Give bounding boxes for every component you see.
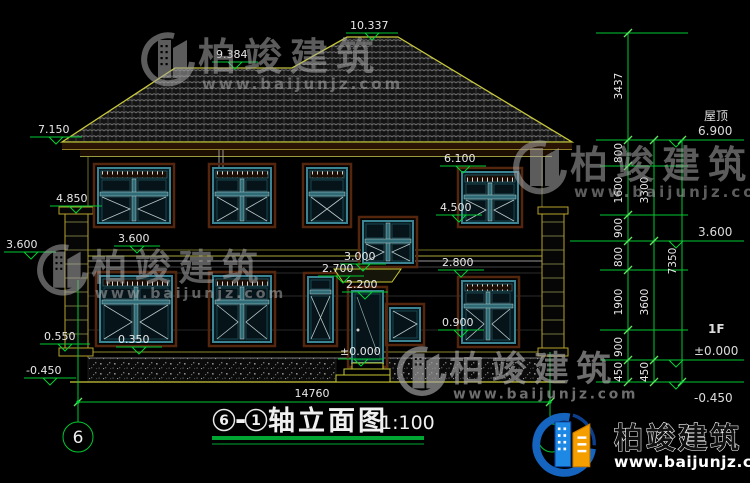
brand-url: www.baijunjz.com: [614, 453, 750, 471]
level-zero-right: ±0.000: [694, 344, 738, 358]
watermark-brand: 柏竣建筑: [91, 246, 266, 289]
drawing-canvas: 7.150 4.850 3.600 0.550 -0.450 0.350 3.6…: [0, 0, 750, 483]
level-3600-left-out: 3.600: [6, 238, 38, 251]
watermark-url: www.baijunjz.com: [453, 386, 638, 402]
floor-1f-label: 1F: [708, 322, 725, 336]
level-2200: 2.200: [346, 278, 378, 291]
axis-bubble-number: 6: [73, 428, 84, 448]
window-2f-3: [303, 164, 351, 227]
level-10337: 10.337: [350, 19, 389, 32]
door-handle: [357, 329, 360, 332]
window-2f-2: [209, 164, 275, 227]
level-4500: 4.500: [440, 201, 472, 214]
title-separator: -: [235, 405, 249, 436]
watermark-logo-icon: [144, 35, 192, 83]
level-4850: 4.850: [56, 192, 88, 205]
watermark-brand: 柏竣建筑: [449, 349, 618, 390]
right-dimensions: 3437 800 1600 900 800 1900 900 450 3300 …: [570, 29, 744, 405]
level-0550: 0.550: [44, 330, 76, 343]
level-0350: 0.350: [118, 333, 150, 346]
watermark-brand: 柏竣建筑: [570, 143, 750, 187]
watermark-url: www.baijunjz.com: [202, 75, 403, 93]
cad-elevation-drawing: 7.150 4.850 3.600 0.550 -0.450 0.350 3.6…: [0, 0, 750, 483]
dim-800b: 800: [613, 247, 625, 267]
level-2700: 2.700: [322, 262, 354, 275]
title-underline-thick: [212, 436, 424, 440]
dim-1900: 1900: [613, 289, 625, 316]
dim-3437: 3437: [613, 73, 625, 100]
brand-logo: 柏竣建筑 www.baijunjz.com: [536, 415, 750, 473]
entry-steps: [336, 363, 390, 382]
title-scale: 1:100: [380, 412, 435, 434]
watermark-bottom: 柏竣建筑 www.baijunjz.com: [400, 349, 638, 402]
cornice-bands: [62, 142, 572, 157]
level-7150: 7.150: [38, 123, 70, 136]
brand-name: 柏竣建筑: [614, 421, 742, 455]
dim-3600: 3600: [639, 289, 651, 316]
window-1f-3: [458, 277, 519, 347]
level-6100: 6.100: [444, 152, 476, 165]
level-neg0450-right: -0.450: [694, 391, 733, 405]
drawing-title: 6 - 1 轴立面图 1:100: [212, 405, 435, 444]
dim-450b: 450: [639, 362, 651, 382]
level-2800: 2.800: [442, 256, 474, 269]
brand-logo-icon: [536, 415, 594, 473]
level-neg0450-left: -0.450: [26, 364, 61, 377]
window-2f-4: [458, 168, 522, 227]
watermark-logo-icon: [516, 143, 564, 191]
level-3600-left-in: 3.600: [118, 232, 150, 245]
title-text: 轴立面图: [268, 405, 388, 437]
watermark-url: www.baijunjz.com: [574, 183, 750, 201]
level-3600-right: 3.600: [698, 225, 732, 239]
title-axis-from: 6: [219, 413, 229, 429]
dim-7350: 7350: [667, 248, 679, 275]
right-pillar: [538, 207, 568, 356]
window-2f-1: [94, 164, 174, 227]
window-1f-small: [386, 304, 424, 345]
watermark-logo-icon: [40, 247, 85, 293]
level-6900: 6.900: [698, 124, 732, 138]
level-0900: 0.900: [442, 316, 474, 329]
roof-label: 屋顶: [704, 109, 728, 123]
level-zero-door: ±0.000: [340, 345, 381, 358]
dim-total-width: 14760: [295, 387, 330, 400]
watermark-url: www.baijunjz.com: [95, 286, 286, 302]
title-axis-to: 1: [251, 413, 261, 429]
dim-900a: 900: [613, 218, 625, 238]
window-1f-narrow: [304, 273, 337, 346]
watermark-brand: 柏竣建筑: [198, 35, 382, 79]
